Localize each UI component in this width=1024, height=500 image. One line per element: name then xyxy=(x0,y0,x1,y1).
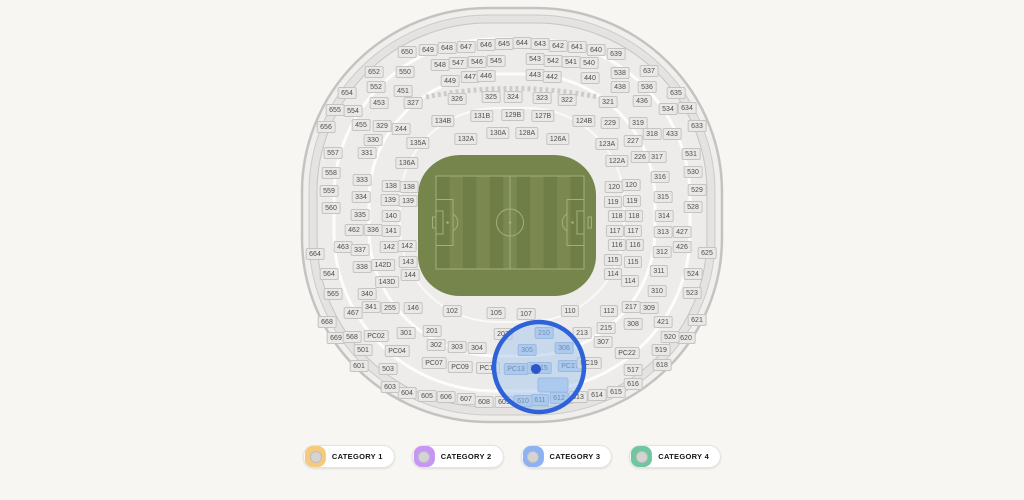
section-648[interactable]: 648 xyxy=(438,42,457,54)
section-136a[interactable]: 136A xyxy=(395,157,418,169)
section-119[interactable]: 119 xyxy=(623,195,641,207)
section-305[interactable]: 305 xyxy=(518,344,537,356)
section-605[interactable]: 605 xyxy=(418,390,437,402)
section-120[interactable]: 120 xyxy=(605,181,624,193)
section-255[interactable]: 255 xyxy=(381,302,400,314)
section-pc07[interactable]: PC07 xyxy=(422,357,447,369)
section-612[interactable]: 612 xyxy=(550,392,569,404)
legend-label: CATEGORY 2 xyxy=(441,452,492,461)
section-pc11[interactable]: PC11 xyxy=(476,362,500,374)
section-117[interactable]: 117 xyxy=(624,225,642,237)
section-644[interactable]: 644 xyxy=(513,37,532,49)
section-524[interactable]: 524 xyxy=(684,268,703,280)
section-340[interactable]: 340 xyxy=(358,288,377,300)
section-641[interactable]: 641 xyxy=(568,41,587,53)
section-229[interactable]: 229 xyxy=(601,117,620,129)
section-463[interactable]: 463 xyxy=(334,241,353,253)
section-334[interactable]: 334 xyxy=(352,191,371,203)
section-304[interactable]: 304 xyxy=(468,342,487,354)
section-635[interactable]: 635 xyxy=(667,87,686,99)
section-559[interactable]: 559 xyxy=(320,185,339,197)
section-122a[interactable]: 122A xyxy=(605,155,628,167)
section-302[interactable]: 302 xyxy=(427,339,446,351)
section-606[interactable]: 606 xyxy=(437,391,456,403)
section-313[interactable]: 313 xyxy=(654,226,673,238)
section-614[interactable]: 614 xyxy=(588,389,607,401)
section-618[interactable]: 618 xyxy=(653,359,672,371)
section-545[interactable]: 545 xyxy=(487,55,506,67)
legend-category-3[interactable]: CATEGORY 3 xyxy=(521,445,613,468)
section-336[interactable]: 336 xyxy=(364,224,383,236)
section-118[interactable]: 118 xyxy=(608,210,626,222)
section-316[interactable]: 316 xyxy=(651,171,670,183)
legend-category-4[interactable]: CATEGORY 4 xyxy=(629,445,721,468)
section-517[interactable]: 517 xyxy=(624,364,643,376)
section-128a[interactable]: 128A xyxy=(515,127,538,139)
section-654[interactable]: 654 xyxy=(338,87,357,99)
category-color-swatch xyxy=(523,446,544,467)
section-143[interactable]: 143 xyxy=(399,256,418,268)
section-564[interactable]: 564 xyxy=(320,268,339,280)
section-615[interactable]: 615 xyxy=(607,386,626,398)
section-116[interactable]: 116 xyxy=(626,239,644,251)
section-227[interactable]: 227 xyxy=(624,135,643,147)
section-436[interactable]: 436 xyxy=(633,95,652,107)
seat-dot-icon xyxy=(527,451,539,463)
section-321[interactable]: 321 xyxy=(599,96,618,108)
legend-label: CATEGORY 1 xyxy=(332,452,383,461)
section-546[interactable]: 546 xyxy=(468,56,487,68)
section-139[interactable]: 139 xyxy=(381,194,400,206)
section-552[interactable]: 552 xyxy=(367,81,386,93)
section-543[interactable]: 543 xyxy=(526,53,545,65)
section-643[interactable]: 643 xyxy=(531,38,550,50)
section-307[interactable]: 307 xyxy=(594,336,613,348)
section-650[interactable]: 650 xyxy=(398,46,417,58)
section-656[interactable]: 656 xyxy=(317,121,336,133)
stadium-seat-map[interactable]: 6506496486476466456446436426416406396526… xyxy=(0,0,1024,500)
section-312[interactable]: 312 xyxy=(653,246,672,258)
section-550[interactable]: 550 xyxy=(396,66,415,78)
section-322[interactable]: 322 xyxy=(558,94,577,106)
section-520[interactable]: 520 xyxy=(661,331,680,343)
section-115[interactable]: 115 xyxy=(604,254,622,266)
section-310[interactable]: 310 xyxy=(648,285,667,297)
section-642[interactable]: 642 xyxy=(549,40,568,52)
section-557[interactable]: 557 xyxy=(324,147,343,159)
section-467[interactable]: 467 xyxy=(344,307,363,319)
section-616[interactable]: 616 xyxy=(624,378,643,390)
section-138[interactable]: 138 xyxy=(382,180,401,192)
section-labels-layer: 6506496486476466456446436426416406396526… xyxy=(0,0,1024,500)
section-335[interactable]: 335 xyxy=(351,209,370,221)
section-132a[interactable]: 132A xyxy=(454,133,477,145)
section-115[interactable]: 115 xyxy=(624,256,642,268)
section-207[interactable]: 207 xyxy=(494,328,513,340)
section-pc22[interactable]: PC22 xyxy=(615,347,640,359)
section-129b[interactable]: 129B xyxy=(501,109,524,121)
section-603[interactable]: 603 xyxy=(381,381,400,393)
section-503[interactable]: 503 xyxy=(379,363,398,375)
section-201[interactable]: 201 xyxy=(423,325,442,337)
section-325[interactable]: 325 xyxy=(482,91,501,103)
section-105[interactable]: 105 xyxy=(487,307,506,319)
section-pc13[interactable]: PC13 xyxy=(504,363,529,375)
section-114[interactable]: 114 xyxy=(621,275,639,287)
section-308[interactable]: 308 xyxy=(624,318,643,330)
section-139[interactable]: 139 xyxy=(399,195,418,207)
section-341[interactable]: 341 xyxy=(362,301,381,313)
section-621[interactable]: 621 xyxy=(688,314,707,326)
section-427[interactable]: 427 xyxy=(673,226,692,238)
section-329[interactable]: 329 xyxy=(373,120,392,132)
section-123a[interactable]: 123A xyxy=(595,138,618,150)
section-213[interactable]: 213 xyxy=(573,327,592,339)
section-226[interactable]: 226 xyxy=(631,151,650,163)
section-646[interactable]: 646 xyxy=(477,39,496,51)
section-565[interactable]: 565 xyxy=(324,288,343,300)
section-560[interactable]: 560 xyxy=(322,202,341,214)
section-538[interactable]: 538 xyxy=(611,67,630,79)
section-112[interactable]: 112 xyxy=(600,305,618,317)
section-664[interactable]: 664 xyxy=(306,248,325,260)
section-451[interactable]: 451 xyxy=(394,85,413,97)
section-144[interactable]: 144 xyxy=(401,269,420,281)
section-131b[interactable]: 131B xyxy=(470,110,493,122)
section-462[interactable]: 462 xyxy=(345,224,364,236)
section-531[interactable]: 531 xyxy=(682,148,701,160)
section-610[interactable]: 610 xyxy=(514,395,533,407)
section-142[interactable]: 142 xyxy=(380,241,399,253)
section-634[interactable]: 634 xyxy=(678,102,697,114)
section-542[interactable]: 542 xyxy=(544,55,563,67)
section-625[interactable]: 625 xyxy=(698,247,717,259)
section-668[interactable]: 668 xyxy=(318,316,337,328)
section-331[interactable]: 331 xyxy=(358,147,377,159)
section-116[interactable]: 116 xyxy=(608,239,626,251)
section-528[interactable]: 528 xyxy=(684,201,703,213)
legend-label: CATEGORY 3 xyxy=(550,452,601,461)
section-613[interactable]: 613 xyxy=(569,391,588,403)
section-315[interactable]: 315 xyxy=(654,191,673,203)
section-119[interactable]: 119 xyxy=(604,196,622,208)
section-pc09[interactable]: PC09 xyxy=(448,361,473,373)
section-611[interactable]: 611 xyxy=(531,394,549,406)
section-433[interactable]: 433 xyxy=(663,128,682,140)
section-138[interactable]: 138 xyxy=(400,181,419,193)
section-647[interactable]: 647 xyxy=(457,41,476,53)
section-440[interactable]: 440 xyxy=(581,72,600,84)
section-306[interactable]: 306 xyxy=(555,342,574,354)
section-102[interactable]: 102 xyxy=(443,305,462,317)
section-530[interactable]: 530 xyxy=(684,166,703,178)
section-146[interactable]: 146 xyxy=(404,302,423,314)
section-126a[interactable]: 126A xyxy=(546,133,569,145)
section-640[interactable]: 640 xyxy=(587,44,606,56)
section-107[interactable]: 107 xyxy=(517,308,536,320)
section-633[interactable]: 633 xyxy=(688,120,707,132)
section-140[interactable]: 140 xyxy=(382,210,401,222)
section-pc02[interactable]: PC02 xyxy=(364,330,389,342)
section-118[interactable]: 118 xyxy=(625,210,643,222)
category-legend: CATEGORY 1CATEGORY 2CATEGORY 3CATEGORY 4 xyxy=(303,445,721,468)
section-244[interactable]: 244 xyxy=(392,123,411,135)
section-330[interactable]: 330 xyxy=(364,134,383,146)
section-426[interactable]: 426 xyxy=(673,241,692,253)
category-color-swatch xyxy=(631,446,652,467)
section-568[interactable]: 568 xyxy=(343,331,362,343)
section-655[interactable]: 655 xyxy=(326,104,345,116)
section-143d[interactable]: 143D xyxy=(375,276,399,288)
section-pc04[interactable]: PC04 xyxy=(385,345,410,357)
section-317[interactable]: 317 xyxy=(648,151,667,163)
section-142d[interactable]: 142D xyxy=(371,259,395,271)
section-pc19[interactable]: PC19 xyxy=(577,357,602,369)
section-519[interactable]: 519 xyxy=(652,344,671,356)
section-607[interactable]: 607 xyxy=(457,393,476,405)
section-326[interactable]: 326 xyxy=(448,93,467,105)
section-323[interactable]: 323 xyxy=(533,92,552,104)
section-217[interactable]: 217 xyxy=(622,301,641,313)
section-117[interactable]: 117 xyxy=(606,225,624,237)
section-438[interactable]: 438 xyxy=(611,81,630,93)
seat-dot-icon xyxy=(309,451,321,463)
section-333[interactable]: 333 xyxy=(353,174,372,186)
section-309[interactable]: 309 xyxy=(640,302,659,314)
section-141[interactable]: 141 xyxy=(382,225,401,237)
section-134b[interactable]: 134B xyxy=(431,115,454,127)
section-540[interactable]: 540 xyxy=(580,57,599,69)
section-135a[interactable]: 135A xyxy=(406,137,429,149)
section-637[interactable]: 637 xyxy=(640,65,659,77)
seat-dot-icon xyxy=(636,451,648,463)
section-639[interactable]: 639 xyxy=(607,48,626,60)
legend-category-1[interactable]: CATEGORY 1 xyxy=(303,445,395,468)
section-311[interactable]: 311 xyxy=(650,265,668,277)
section-547[interactable]: 547 xyxy=(449,57,468,69)
section-pc15[interactable]: PC15 xyxy=(527,362,552,374)
category-color-swatch xyxy=(414,446,435,467)
section-523[interactable]: 523 xyxy=(683,287,702,299)
section-327[interactable]: 327 xyxy=(404,97,423,109)
section-301[interactable]: 301 xyxy=(397,327,416,339)
category-color-swatch xyxy=(305,446,326,467)
section-604[interactable]: 604 xyxy=(398,387,417,399)
section-442[interactable]: 442 xyxy=(543,71,562,83)
section-608[interactable]: 608 xyxy=(475,396,494,408)
legend-label: CATEGORY 4 xyxy=(658,452,709,461)
section-501[interactable]: 501 xyxy=(354,344,373,356)
section-455[interactable]: 455 xyxy=(352,119,371,131)
section-609[interactable]: 609 xyxy=(495,396,514,408)
section-210[interactable]: 210 xyxy=(535,327,554,339)
legend-category-2[interactable]: CATEGORY 2 xyxy=(412,445,504,468)
section-443[interactable]: 443 xyxy=(526,69,545,81)
section-303[interactable]: 303 xyxy=(448,341,467,353)
section-314[interactable]: 314 xyxy=(655,210,674,222)
section-645[interactable]: 645 xyxy=(495,38,514,50)
seat-dot-icon xyxy=(418,451,430,463)
section-114[interactable]: 114 xyxy=(604,268,622,280)
section-536[interactable]: 536 xyxy=(638,81,657,93)
section-318[interactable]: 318 xyxy=(643,128,662,140)
section-142[interactable]: 142 xyxy=(398,240,417,252)
section-601[interactable]: 601 xyxy=(350,360,369,372)
section-541[interactable]: 541 xyxy=(562,56,581,68)
section-558[interactable]: 558 xyxy=(322,167,341,179)
section-127b[interactable]: 127B xyxy=(531,110,554,122)
section-421[interactable]: 421 xyxy=(654,316,673,328)
section-215[interactable]: 215 xyxy=(597,322,616,334)
section-453[interactable]: 453 xyxy=(370,97,389,109)
section-649[interactable]: 649 xyxy=(419,44,438,56)
section-529[interactable]: 529 xyxy=(688,184,707,196)
section-534[interactable]: 534 xyxy=(659,103,678,115)
section-110[interactable]: 110 xyxy=(561,305,579,317)
section-652[interactable]: 652 xyxy=(365,66,384,78)
section-446[interactable]: 446 xyxy=(477,70,496,82)
section-338[interactable]: 338 xyxy=(353,261,372,273)
section-449[interactable]: 449 xyxy=(441,75,460,87)
section-548[interactable]: 548 xyxy=(431,59,450,71)
section-554[interactable]: 554 xyxy=(344,105,363,117)
section-120[interactable]: 120 xyxy=(622,179,641,191)
section-130a[interactable]: 130A xyxy=(486,127,509,139)
section-324[interactable]: 324 xyxy=(504,91,523,103)
section-620[interactable]: 620 xyxy=(677,332,696,344)
section-337[interactable]: 337 xyxy=(351,244,370,256)
section-124b[interactable]: 124B xyxy=(572,115,595,127)
